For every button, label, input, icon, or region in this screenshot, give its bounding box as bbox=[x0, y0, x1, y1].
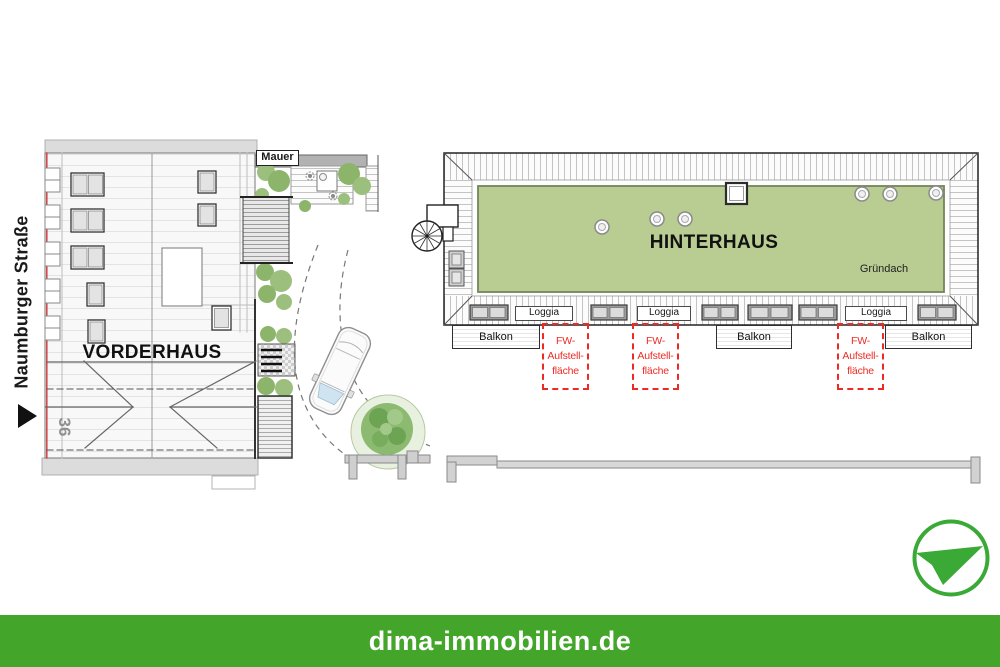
fire-lane-area-3: FW- Aufstell- fläche bbox=[837, 323, 884, 390]
fw-line: Aufstell- bbox=[634, 349, 677, 364]
loggia-label-3: Loggia bbox=[845, 306, 907, 321]
vorderhaus-building bbox=[42, 140, 258, 489]
walkway-ramp bbox=[258, 396, 292, 458]
stair-core bbox=[162, 248, 202, 306]
fw-line: FW- bbox=[544, 334, 587, 349]
house-number-label: 36 bbox=[54, 418, 74, 437]
site-plan-canvas: Naumburger Straße 36 VORDERHAUS HINTERHA… bbox=[0, 0, 1000, 667]
mauer-label: Mauer bbox=[256, 150, 299, 166]
vorderhaus-title: VORDERHAUS bbox=[82, 342, 221, 364]
balkon-label-2: Balkon bbox=[716, 325, 792, 349]
balkon-label-1: Balkon bbox=[452, 325, 540, 349]
footer-bar: dima-immobilien.de bbox=[0, 615, 1000, 667]
west-windows bbox=[449, 251, 464, 286]
footer-website: dima-immobilien.de bbox=[369, 626, 632, 657]
sidewalk-strip-bottom bbox=[42, 458, 258, 475]
terrace-deck bbox=[240, 197, 293, 263]
fire-lane-area-2: FW- Aufstell- fläche bbox=[632, 323, 679, 390]
loggia-label-2: Loggia bbox=[637, 306, 691, 321]
fw-line: fläche bbox=[634, 364, 677, 379]
garden-table bbox=[317, 171, 337, 191]
street-name-label: Naumburger Straße bbox=[12, 215, 33, 388]
boundary-wall bbox=[447, 456, 980, 483]
courtyard-tree-icon bbox=[345, 395, 430, 479]
fw-line: FW- bbox=[839, 334, 882, 349]
hinterhaus-title: HINTERHAUS bbox=[650, 232, 779, 254]
fire-lane-area-1: FW- Aufstell- fläche bbox=[542, 323, 589, 390]
fw-line: Aufstell- bbox=[544, 349, 587, 364]
sidewalk-strip-top bbox=[45, 140, 257, 153]
external-stairs bbox=[258, 344, 295, 376]
fw-line: Aufstell- bbox=[839, 349, 882, 364]
fw-line: FW- bbox=[634, 334, 677, 349]
loggia-label-1: Loggia bbox=[515, 306, 573, 321]
fw-line: fläche bbox=[544, 364, 587, 379]
balkon-label-3: Balkon bbox=[885, 325, 972, 349]
street-direction-arrow-icon bbox=[18, 404, 37, 428]
green-roof-label: Gründach bbox=[860, 263, 908, 275]
fw-line: fläche bbox=[839, 364, 882, 379]
dima-logo bbox=[905, 512, 997, 604]
